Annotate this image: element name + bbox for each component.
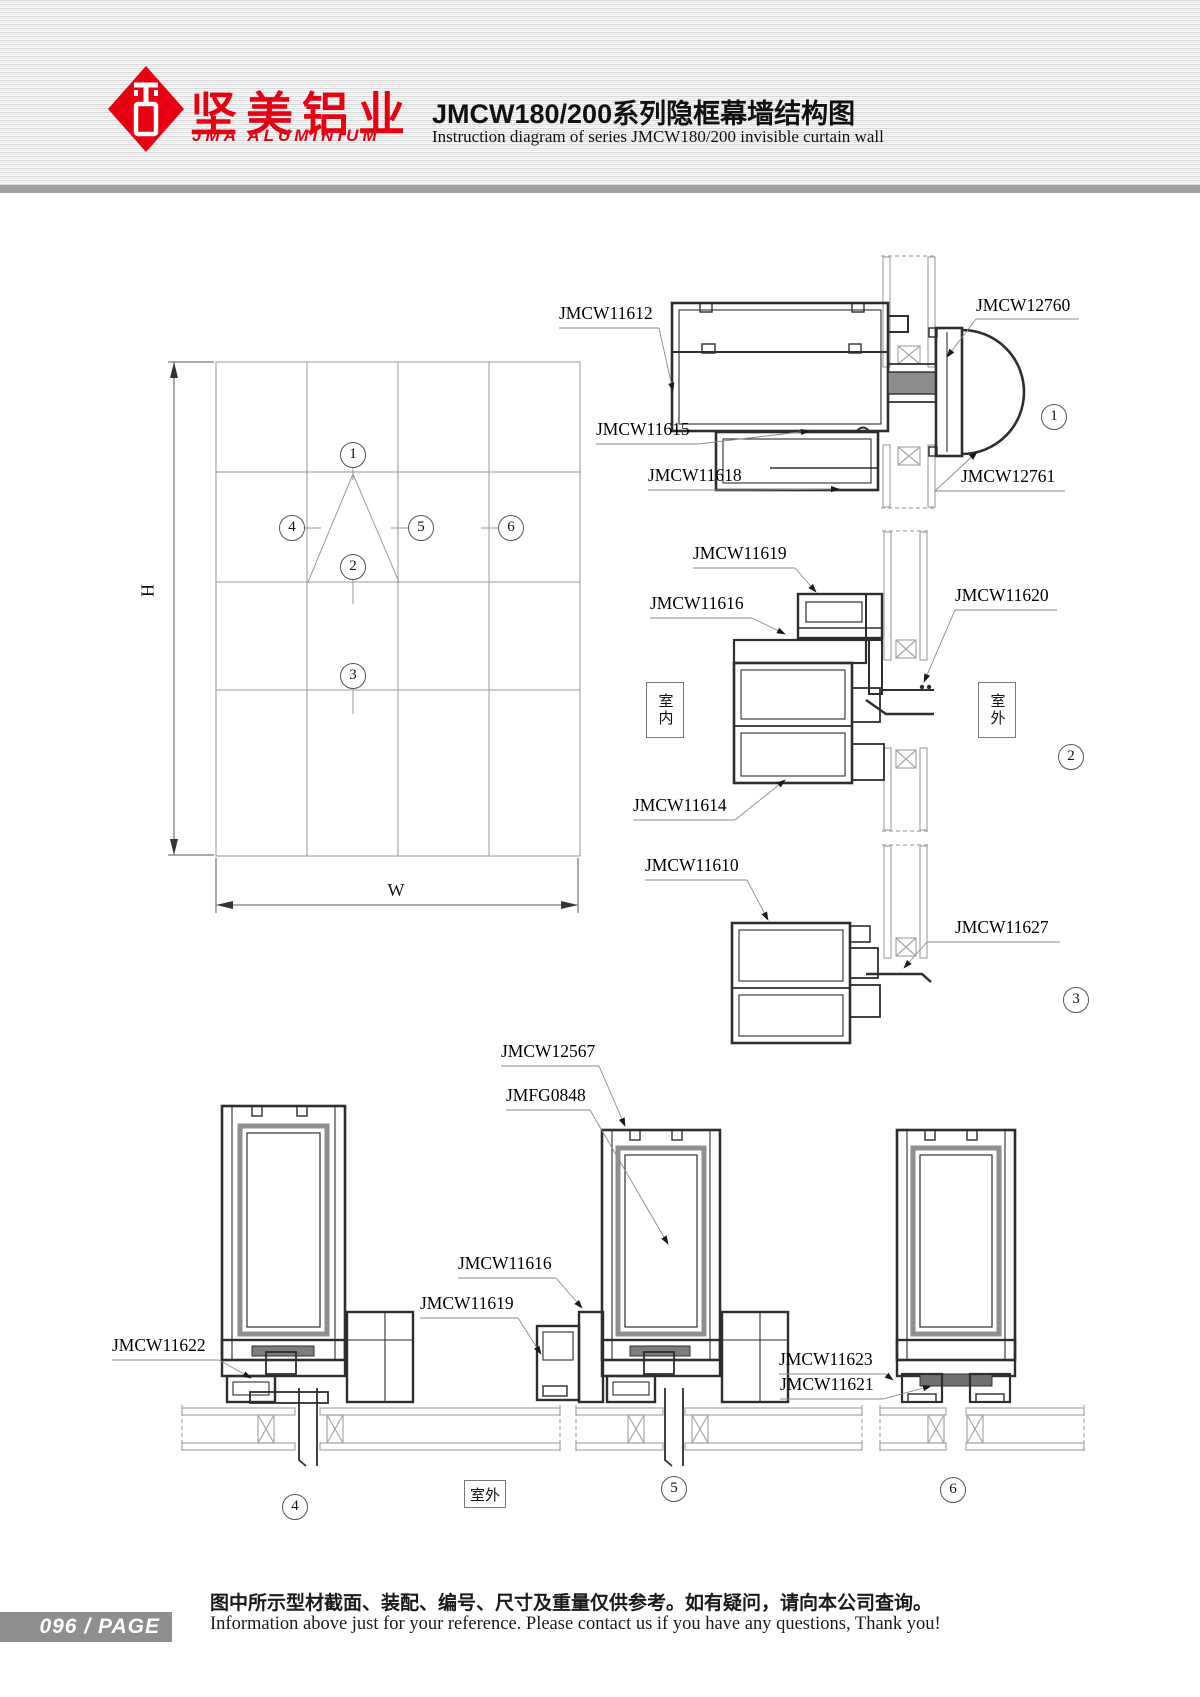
detail-balloon-3: 3 (340, 663, 366, 689)
catalog-page: 坚美铝业 JMA ALUMINIUM JMCW180/200系列隐框幕墙结构图 … (0, 0, 1200, 1697)
page-separator: / (84, 1615, 91, 1638)
page-word: PAGE (98, 1615, 160, 1638)
part-label-jmcw11622: JMCW11622 (112, 1337, 206, 1355)
part-label-jmcw11615: JMCW11615 (596, 421, 690, 439)
part-label-jmcw11618: JMCW11618 (648, 467, 742, 485)
section-4-profiles (222, 1106, 413, 1466)
part-label-jmcw11616: JMCW11616 (650, 595, 744, 613)
part-label-jmcw11619: JMCW11619 (420, 1295, 514, 1313)
diagram-canvas (0, 0, 1200, 1697)
part-label-jmcw11612: JMCW11612 (559, 305, 653, 323)
detail-balloon-2: 2 (1058, 744, 1084, 770)
detail-balloon-4: 4 (279, 515, 305, 541)
detail-balloon-6: 6 (940, 1477, 966, 1503)
detail-balloon-3: 3 (1063, 987, 1089, 1013)
part-label-jmcw12760: JMCW12760 (976, 297, 1070, 315)
dimension-lines (168, 362, 578, 913)
detail-balloon-5: 5 (661, 1476, 687, 1502)
part-label-jmcw11616: JMCW11616 (458, 1255, 552, 1273)
section-2-profiles (734, 594, 934, 783)
detail-balloon-2: 2 (340, 554, 366, 580)
part-label-jmcw11621: JMCW11621 (780, 1376, 874, 1394)
dimension-arrows (170, 362, 578, 909)
detail-balloon-1: 1 (340, 442, 366, 468)
width-dimension-label: W (376, 880, 416, 901)
outdoor-label: 室外 (978, 682, 1016, 738)
part-label-jmcw11623: JMCW11623 (779, 1351, 873, 1369)
page-number-badge: 096 / PAGE (0, 1612, 172, 1642)
indoor-label: 室内 (646, 682, 684, 738)
outdoor-label-bottom: 室外 (464, 1480, 506, 1508)
detail-balloon-1: 1 (1041, 404, 1067, 430)
detail-balloon-6: 6 (498, 515, 524, 541)
part-label-jmcw11619: JMCW11619 (693, 545, 787, 563)
detail-balloon-5: 5 (408, 515, 434, 541)
detail-balloon-4: 4 (282, 1494, 308, 1520)
part-label-jmcw11627: JMCW11627 (955, 919, 1049, 937)
part-label-jmcw11620: JMCW11620 (955, 587, 1049, 605)
part-label-jmcw11610: JMCW11610 (645, 857, 739, 875)
part-label-jmcw11614: JMCW11614 (633, 797, 727, 815)
elevation-grid (216, 362, 580, 856)
height-dimension-label: H (138, 571, 159, 611)
section-6-profiles (897, 1130, 1015, 1402)
glazing-units-vertical (881, 256, 937, 958)
section-3-profiles (732, 923, 931, 1043)
section-1-profiles (672, 303, 1024, 490)
footer-note-en: Information above just for your referenc… (210, 1614, 941, 1635)
part-label-jmcw12761: JMCW12761 (961, 468, 1055, 486)
footer-note-cn: 图中所示型材截面、装配、编号、尺寸及重量仅供参考。如有疑问，请向本公司查询。 (210, 1588, 932, 1615)
page-number: 096 (39, 1615, 77, 1638)
part-label-jmcw12567: JMCW12567 (501, 1043, 595, 1061)
part-label-jmfg0848: JMFG0848 (506, 1087, 586, 1105)
